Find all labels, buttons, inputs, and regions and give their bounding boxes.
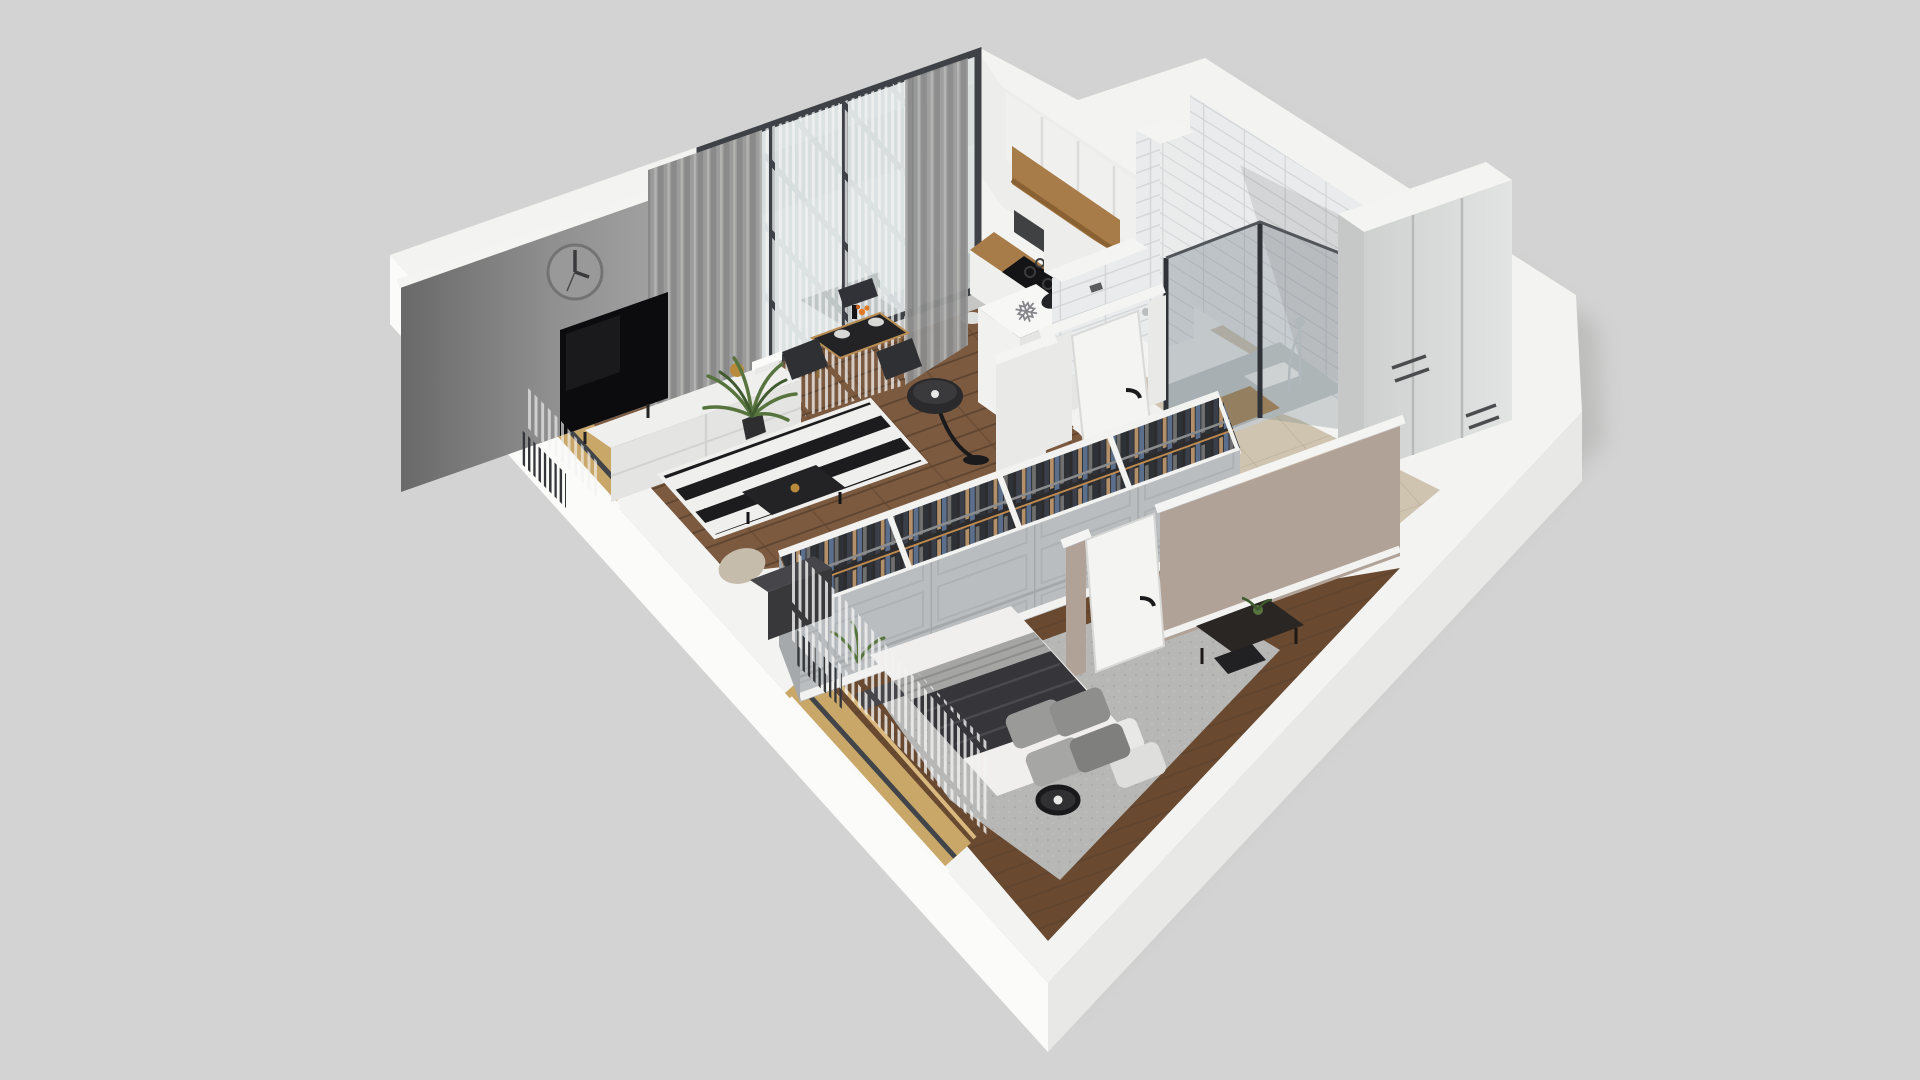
bedroom-floor-lamp xyxy=(1038,787,1078,813)
plate xyxy=(868,318,884,327)
flowers xyxy=(864,305,869,310)
wall-clock xyxy=(548,245,602,299)
door-wall-stub xyxy=(1148,295,1166,407)
wall-segment xyxy=(1066,540,1086,680)
lamp-bulb xyxy=(931,390,939,398)
plate xyxy=(834,330,850,339)
flowers xyxy=(859,309,865,315)
lamp-base xyxy=(963,455,989,465)
curtain-gray-right xyxy=(905,58,968,385)
tall-wardrobe-cabinet xyxy=(1338,162,1512,472)
gold-vase xyxy=(791,484,800,493)
lamp-bulb xyxy=(1054,796,1063,805)
flowers xyxy=(856,305,860,309)
door-leaf xyxy=(1086,514,1164,672)
apartment-scene: ❅ xyxy=(0,0,1920,1080)
floorplan-render: ❅ xyxy=(0,0,1920,1080)
bedroom-door xyxy=(1086,514,1164,672)
door-wall-stub xyxy=(1044,331,1072,451)
